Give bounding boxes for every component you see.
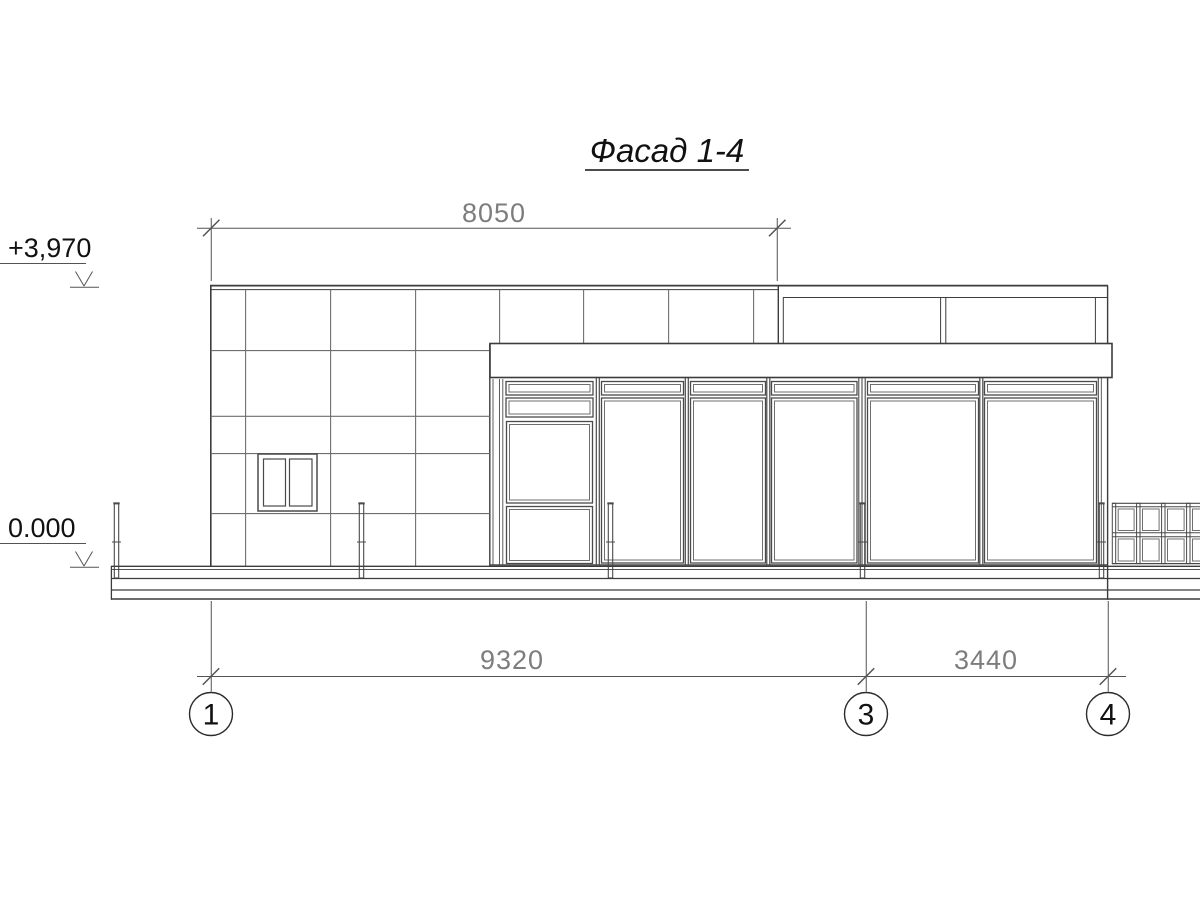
level-mark-ground: 0.000	[0, 513, 99, 567]
page-title: Фасад 1-4	[590, 132, 745, 169]
glass-pane	[772, 398, 858, 563]
storefront-section	[985, 382, 1097, 564]
glass-pane	[602, 398, 684, 563]
fence-bar	[1112, 503, 1115, 563]
fence-bar	[1137, 503, 1140, 563]
fence-bar	[1162, 503, 1165, 563]
glass-pane	[868, 398, 979, 563]
roof-level-label: +3,970	[8, 233, 91, 263]
fence-bar	[1187, 503, 1190, 563]
transom-pane	[772, 382, 858, 396]
storefront-section	[772, 382, 858, 564]
transom-pane	[602, 382, 684, 396]
window-frame	[258, 454, 317, 511]
tile-wall-window	[258, 454, 317, 511]
drawing-title: Фасад 1-4	[585, 132, 749, 170]
transom-pane	[868, 382, 979, 396]
transom-pane	[691, 382, 766, 396]
storefront-section-door	[506, 382, 593, 564]
storefront-glazing	[490, 378, 1108, 565]
transom-pane	[506, 382, 593, 396]
right-fence-grid	[1112, 503, 1200, 563]
axis-label-4: 4	[1100, 699, 1117, 732]
top-dimension-label: 8050	[462, 198, 526, 228]
signboard-fascia	[490, 344, 1112, 378]
top-dimension: 8050	[197, 198, 791, 281]
storefront-section	[868, 382, 979, 564]
axis-label-1: 1	[203, 699, 220, 732]
level-arrow-icon	[76, 272, 85, 287]
axis-markers: 1 3 4	[190, 693, 1130, 736]
level-arrow-icon	[76, 552, 85, 567]
facade-drawing-sheet: Фасад 1-4 8050 +3,970 0.000	[0, 0, 1200, 900]
facade-elevation-canvas: Фасад 1-4 8050 +3,970 0.000	[0, 0, 1200, 900]
storefront-section	[691, 382, 766, 564]
glass-pane	[985, 398, 1097, 563]
level-mark-roof: +3,970	[0, 233, 99, 287]
bottom-dimension-label-3440: 3440	[954, 645, 1018, 675]
glass-pane	[507, 422, 593, 504]
storefront-section	[602, 382, 684, 564]
bottom-dimensions: 9320 3440	[197, 601, 1126, 692]
glass-pane	[507, 507, 593, 564]
glass-pane	[691, 398, 766, 563]
axis-label-3: 3	[858, 699, 875, 732]
transom-pane	[985, 382, 1097, 396]
bottom-dimension-label-9320: 9320	[480, 645, 544, 675]
ground-level-label: 0.000	[8, 513, 76, 543]
